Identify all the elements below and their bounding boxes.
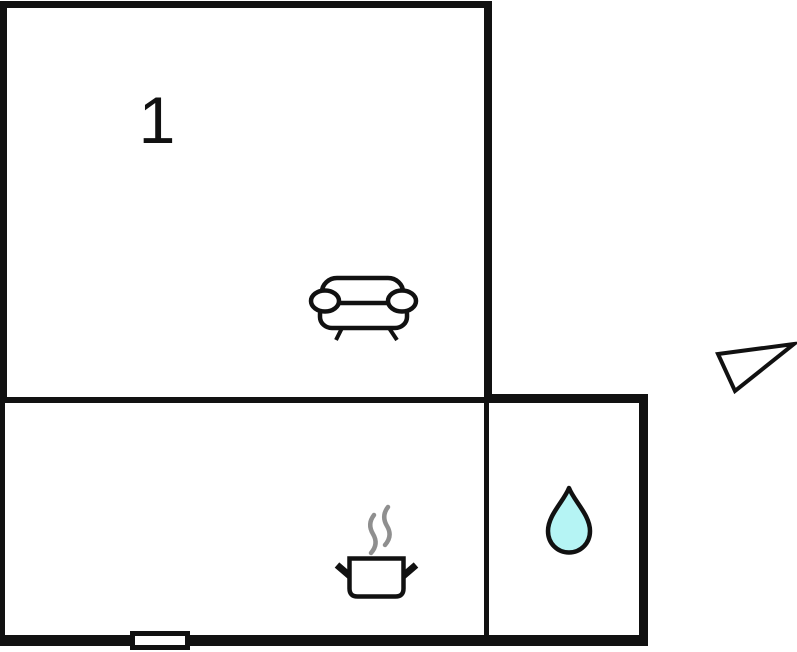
steam-icon [370,507,389,553]
floorplan-canvas: 1 [0,0,797,652]
water-drop-icon [548,488,590,553]
steam-line-left [370,515,375,553]
room-1-label: 1 [139,83,176,157]
wall-left-upper [0,1,7,403]
wall-divider-vertical [484,397,489,646]
pot-group [337,559,416,597]
wall-top-right-room [484,394,648,403]
sofa-icon [311,278,416,340]
pot-body [350,559,404,597]
direction-arrow-icon [718,344,794,391]
sofa-armrest-right [388,291,416,312]
steam-line-right [384,507,389,545]
wall-right-room1 [484,1,492,403]
wall-right-outer [639,394,648,646]
cooking-pot-icon [337,507,416,597]
wall-divider-horizontal [0,397,489,403]
window-marker [133,634,188,648]
wall-left-lower [0,397,5,646]
wall-bottom [0,635,648,646]
sofa-armrest-left [311,291,339,312]
wall-top [0,1,492,8]
